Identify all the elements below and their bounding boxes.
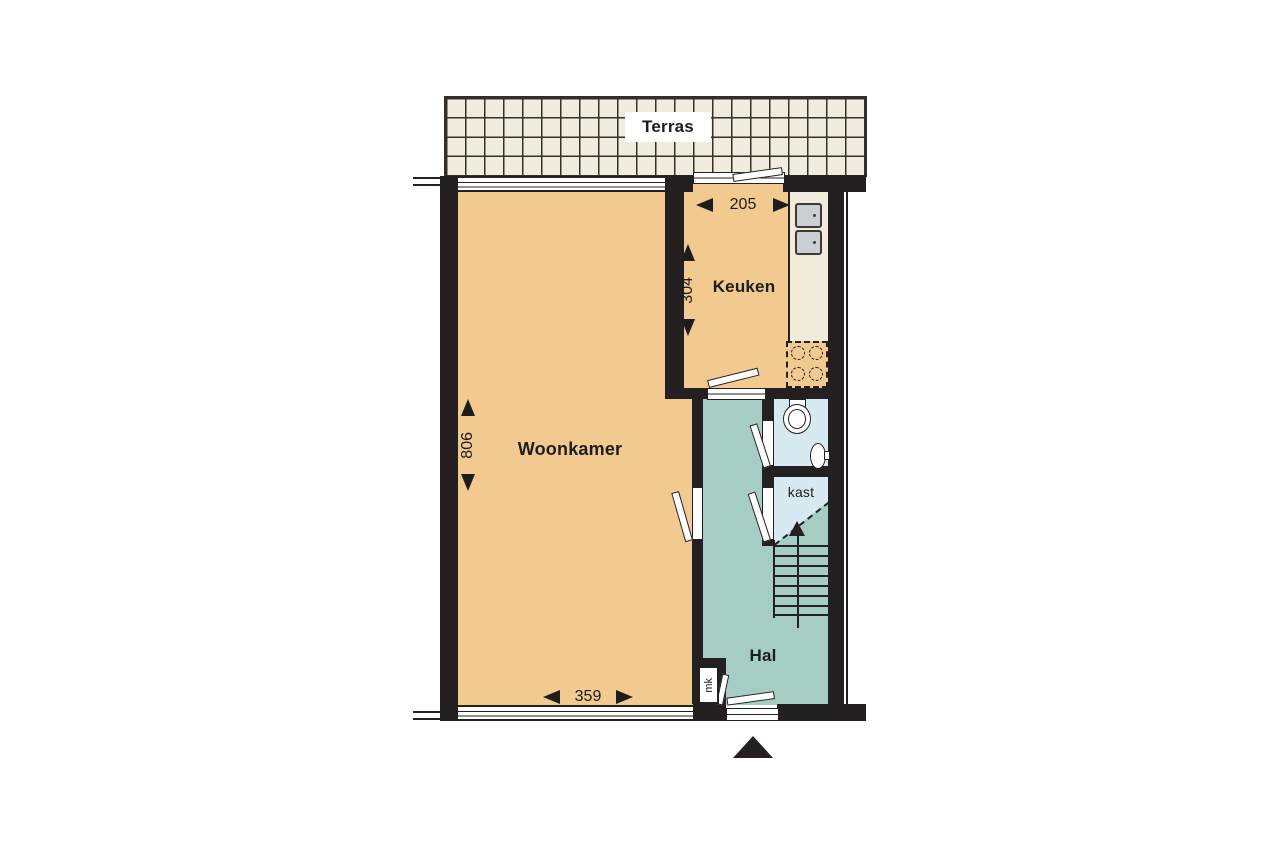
- toilet-bowl-inner: [788, 409, 806, 429]
- cooktop: [786, 341, 828, 388]
- wall-wc-left-upper: [762, 399, 774, 420]
- stair-tread: [775, 545, 828, 547]
- meterkast-label: mk: [703, 678, 715, 693]
- keuken-label: Keuken: [706, 277, 782, 297]
- wall-keuken-bottom-right: [764, 388, 828, 399]
- dim-keuken-depth: 304: [673, 244, 703, 336]
- window-bottom: [458, 705, 693, 721]
- dim-keuken-depth-value: 304: [679, 277, 697, 304]
- woonkamer-door-jamb: [692, 487, 703, 540]
- wall-hal-left-lower: [692, 540, 703, 658]
- arrow-up-icon: [461, 399, 475, 416]
- arrow-left-icon: [543, 690, 560, 704]
- arrow-right-icon: [773, 198, 790, 212]
- dim-woonkamer-depth-value: 806: [459, 432, 477, 459]
- stair-tread: [775, 605, 828, 607]
- stairs-walkline: [797, 532, 799, 628]
- wall-bottom-segment: [693, 704, 726, 721]
- wall-kast-left-upper: [762, 477, 774, 487]
- dim-keuken-width-value: 205: [730, 196, 757, 214]
- woonkamer-label: Woonkamer: [500, 438, 640, 460]
- hal-label: Hal: [743, 645, 783, 667]
- party-wall-line: [846, 192, 848, 704]
- kitchen-sink-bottom: [795, 230, 822, 255]
- boundary-line-bottom-inner: [413, 718, 440, 720]
- dim-woonkamer-width-value: 359: [575, 688, 602, 706]
- wall-right: [828, 192, 844, 704]
- boundary-line-top-outer: [413, 177, 440, 179]
- wall-top-right: [783, 175, 866, 192]
- boundary-line-top-inner: [413, 184, 440, 186]
- burner-icon: [809, 367, 823, 381]
- terrace-label-text: Terras: [642, 117, 694, 137]
- stair-tread: [775, 575, 828, 577]
- floor-plan: Terras mk: [0, 0, 1280, 853]
- meterkast-box: mk: [698, 666, 719, 704]
- arrow-down-icon: [461, 474, 475, 491]
- entrance-arrow-icon: [733, 736, 773, 758]
- arrow-down-icon: [681, 319, 695, 336]
- boundary-line-bottom-outer: [413, 711, 440, 713]
- front-door-threshold: [726, 708, 779, 721]
- window-top: [458, 176, 665, 192]
- stair-tread: [775, 614, 828, 616]
- terrace-label: Terras: [625, 112, 711, 142]
- dim-woonkamer-width: 359: [543, 688, 633, 706]
- kitchen-sink-top: [795, 203, 822, 228]
- wall-top-segment: [665, 175, 693, 192]
- arrow-right-icon: [616, 690, 633, 704]
- stair-tread: [775, 585, 828, 587]
- wc-sink-tap: [824, 451, 830, 460]
- wall-hal-left-upper: [692, 399, 703, 487]
- burner-icon: [791, 346, 805, 360]
- wall-keuken-bottom-left: [665, 388, 707, 399]
- kast-label: kast: [777, 484, 825, 500]
- wall-bottom-right: [777, 704, 866, 721]
- stair-tread: [775, 595, 828, 597]
- dim-woonkamer-depth: 806: [453, 399, 483, 491]
- keuken-door-threshold: [707, 388, 766, 400]
- burner-icon: [809, 346, 823, 360]
- stair-tread: [775, 565, 828, 567]
- dim-keuken-width: 205: [696, 196, 790, 214]
- arrow-up-icon: [681, 244, 695, 261]
- arrow-left-icon: [696, 198, 713, 212]
- burner-icon: [791, 367, 805, 381]
- stair-tread: [775, 555, 828, 557]
